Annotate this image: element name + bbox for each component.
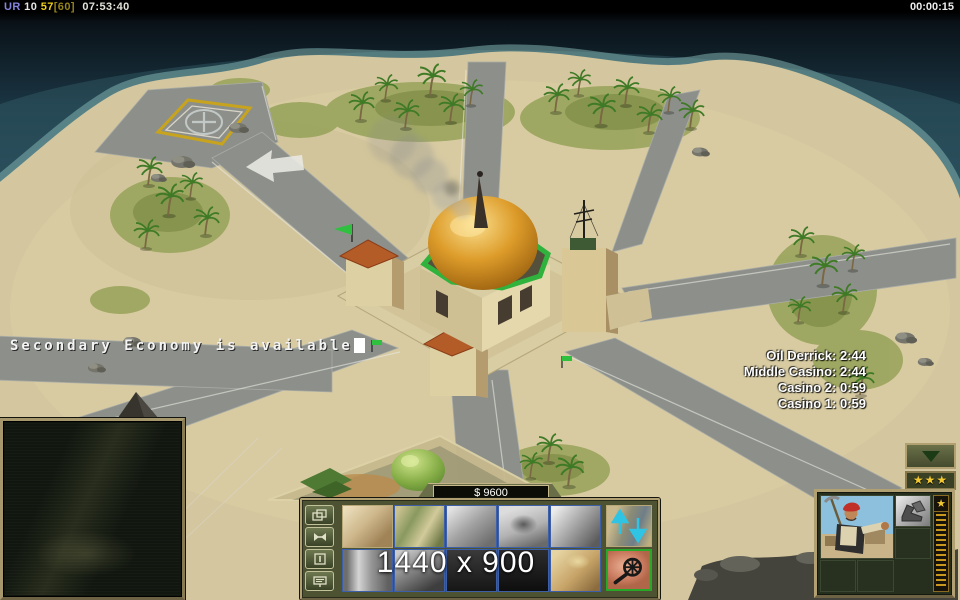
unit-portrait[interactable] [820, 495, 894, 559]
perf-label: UR [4, 1, 21, 13]
wrench-icon [311, 530, 329, 544]
empty-slot[interactable] [895, 528, 931, 560]
mission-clock: 00:00:15 [910, 1, 954, 13]
structures-button[interactable] [305, 505, 334, 525]
minimap-panel[interactable] [0, 418, 185, 600]
timer-line: Oil Derrick: 2:44 [744, 348, 866, 364]
text-cursor [354, 338, 365, 353]
resolution-overlay: 1440 x 900 [315, 546, 597, 580]
event-message: Secondary Economy is available [10, 338, 365, 354]
upgrade-slot-shoes[interactable] [895, 495, 931, 527]
gear-wheel-icon [608, 551, 648, 587]
structures-icon [311, 508, 329, 522]
triangle-down-icon [922, 451, 940, 462]
perf-counter: UR 10 57[60] 07:53:40 [4, 1, 130, 13]
unit-info-panel: ★ [814, 489, 955, 598]
collapse-panel-button[interactable] [905, 443, 956, 469]
build-button-3[interactable] [446, 505, 497, 548]
experience-ticks [936, 514, 946, 589]
top-status-bar: UR 10 57[60] 07:53:40 00:00:15 [0, 0, 960, 22]
timer-line: Casino 2: 0:59 [744, 380, 866, 396]
build-button-5[interactable] [550, 505, 601, 548]
shoes-icon [898, 498, 928, 524]
system-time: 07:53:40 [82, 1, 129, 13]
timer-line: Middle Casino: 2:44 [744, 364, 866, 380]
empty-slot[interactable] [857, 560, 893, 592]
up-down-arrows-button[interactable] [606, 505, 652, 547]
build-timers: Oil Derrick: 2:44 Middle Casino: 2:44 Ca… [744, 348, 866, 412]
empty-slot[interactable] [820, 560, 856, 592]
repair-button[interactable] [305, 527, 334, 547]
minimap-display[interactable] [5, 423, 180, 595]
timer-line: Casino 1: 0:59 [744, 396, 866, 412]
experience-bar: ★ [933, 495, 949, 592]
worker-portrait-image [821, 496, 894, 559]
up-down-arrows-icon [607, 506, 651, 546]
rank-stars: ★★★ [905, 471, 956, 490]
unit-slot-grid [820, 495, 931, 592]
command-right-buttons [601, 500, 657, 598]
build-button-2[interactable] [394, 505, 445, 548]
build-button-4[interactable] [498, 505, 549, 548]
build-button-1[interactable] [342, 505, 393, 548]
veterancy-star-icon: ★ [934, 496, 948, 512]
gear-wheel-button[interactable] [606, 549, 652, 591]
